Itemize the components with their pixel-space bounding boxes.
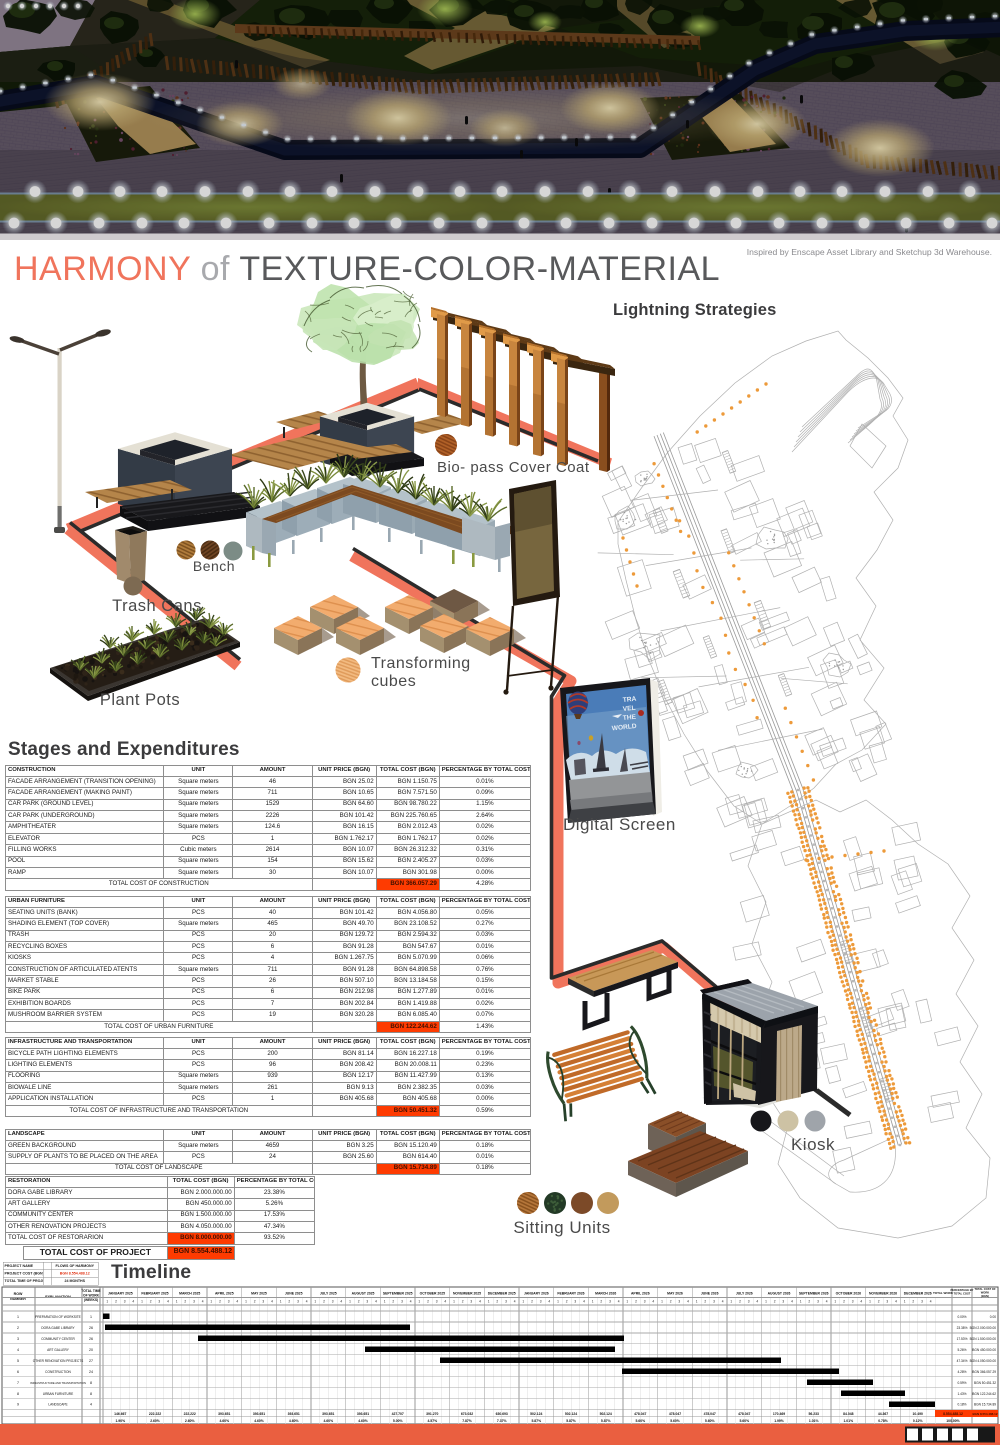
svg-text:8: 8 (90, 1392, 92, 1396)
svg-text:478.047: 478.047 (634, 1412, 646, 1416)
svg-text:1: 1 (592, 1300, 594, 1304)
svg-text:1: 1 (314, 1300, 316, 1304)
svg-text:3: 3 (886, 1300, 888, 1304)
svg-text:BGN 15.734.89: BGN 15.734.89 (974, 1403, 996, 1407)
svg-text:2: 2 (566, 1300, 568, 1304)
svg-text:LANDSCAPE: LANDSCAPE (48, 1403, 67, 1407)
svg-text:1: 1 (176, 1300, 178, 1304)
svg-text:4: 4 (306, 1300, 308, 1304)
svg-text:1: 1 (730, 1300, 732, 1304)
svg-text:502.124: 502.124 (530, 1412, 542, 1416)
svg-text:Kiosk: Kiosk (791, 1135, 835, 1154)
svg-text:27: 27 (89, 1359, 93, 1363)
svg-text:2: 2 (496, 1300, 498, 1304)
svg-text:1.99%: 1.99% (774, 1419, 784, 1423)
svg-text:3: 3 (609, 1300, 611, 1304)
svg-text:4: 4 (271, 1300, 273, 1304)
svg-text:2: 2 (462, 1300, 464, 1304)
svg-text:1: 1 (696, 1300, 698, 1304)
svg-text:NOVEMBER 2025: NOVEMBER 2025 (453, 1292, 481, 1296)
svg-text:4: 4 (90, 1403, 92, 1407)
svg-text:PREPARATION OF WORKSITE: PREPARATION OF WORKSITE (35, 1315, 81, 1319)
svg-text:5.00%: 5.00% (393, 1419, 403, 1423)
svg-text:2: 2 (635, 1300, 637, 1304)
svg-text:2: 2 (774, 1300, 776, 1304)
svg-text:4.28%: 4.28% (957, 1370, 966, 1374)
svg-text:1: 1 (557, 1300, 559, 1304)
svg-text:1: 1 (834, 1300, 836, 1304)
svg-text:TOTAL COST: TOTAL COST (954, 1292, 971, 1296)
svg-text:3: 3 (17, 1337, 19, 1341)
svg-text:4: 4 (236, 1300, 238, 1304)
svg-text:1: 1 (661, 1300, 663, 1304)
svg-text:6: 6 (17, 1370, 19, 1374)
svg-text:3: 3 (158, 1300, 160, 1304)
svg-text:2: 2 (219, 1300, 221, 1304)
svg-text:393.651: 393.651 (218, 1412, 230, 1416)
svg-text:3: 3 (332, 1300, 334, 1304)
svg-text:4: 4 (791, 1300, 793, 1304)
svg-text:DORA GABE LIBRARY: DORA GABE LIBRARY (41, 1326, 75, 1330)
svg-text:MAY 2025: MAY 2025 (251, 1292, 267, 1296)
svg-text:4: 4 (514, 1300, 516, 1304)
svg-text:4: 4 (756, 1300, 758, 1304)
svg-text:100.00%: 100.00% (946, 1419, 959, 1423)
svg-text:AUGUST 2026: AUGUST 2026 (768, 1292, 791, 1296)
svg-text:2: 2 (184, 1300, 186, 1304)
svg-text:2: 2 (704, 1300, 706, 1304)
svg-text:BGN 366.057.29: BGN 366.057.29 (972, 1370, 996, 1374)
svg-text:2: 2 (392, 1300, 394, 1304)
svg-text:478.047: 478.047 (669, 1412, 681, 1416)
svg-text:0.00: 0.00 (990, 1315, 996, 1319)
svg-text:4: 4 (479, 1300, 481, 1304)
svg-text:Bench: Bench (193, 558, 235, 574)
svg-text:TOTAL COST OF: TOTAL COST OF (974, 1287, 996, 1291)
svg-text:1: 1 (210, 1300, 212, 1304)
svg-text:1: 1 (626, 1300, 628, 1304)
svg-text:8: 8 (90, 1381, 92, 1385)
svg-text:JANUARY 2025: JANUARY 2025 (108, 1292, 133, 1296)
svg-text:INFRASTRUCTURE AND TRANSPORTAT: INFRASTRUCTURE AND TRANSPORTATION (30, 1381, 86, 1385)
svg-text:56.233: 56.233 (809, 1412, 819, 1416)
svg-text:2: 2 (670, 1300, 672, 1304)
svg-text:8.554.488.12: 8.554.488.12 (943, 1412, 963, 1416)
svg-text:4: 4 (340, 1300, 342, 1304)
svg-text:APRIL 2025: APRIL 2025 (215, 1292, 234, 1296)
svg-text:BGN 4.050.000.00: BGN 4.050.000.00 (970, 1359, 997, 1363)
svg-text:4.60%: 4.60% (289, 1419, 299, 1423)
svg-text:JULY 2025: JULY 2025 (320, 1292, 337, 1296)
svg-text:3: 3 (921, 1300, 923, 1304)
svg-text:4.57%: 4.57% (427, 1419, 437, 1423)
svg-text:2: 2 (17, 1326, 19, 1330)
svg-text:TRA: TRA (622, 696, 636, 704)
svg-text:Sitting Units: Sitting Units (513, 1218, 610, 1237)
svg-text:4: 4 (860, 1300, 862, 1304)
svg-text:ROW: ROW (14, 1292, 23, 1296)
svg-text:1: 1 (869, 1300, 871, 1304)
svg-text:146.667: 146.667 (114, 1412, 126, 1416)
svg-text:5.60%: 5.60% (705, 1419, 715, 1423)
svg-text:8: 8 (17, 1392, 19, 1396)
svg-text:2: 2 (531, 1300, 533, 1304)
svg-text:673.032: 673.032 (461, 1412, 473, 1416)
svg-text:478.047: 478.047 (738, 1412, 750, 1416)
svg-text:3: 3 (574, 1300, 576, 1304)
svg-text:BGN 1.500.000.00: BGN 1.500.000.00 (970, 1337, 997, 1341)
svg-text:4: 4 (375, 1300, 377, 1304)
svg-text:3: 3 (644, 1300, 646, 1304)
svg-text:BGN 122.244.62: BGN 122.244.62 (972, 1392, 996, 1396)
svg-text:4: 4 (652, 1300, 654, 1304)
svg-text:4: 4 (202, 1300, 204, 1304)
svg-text:2.60%: 2.60% (185, 1419, 195, 1423)
svg-text:393.651: 393.651 (322, 1412, 334, 1416)
svg-text:2: 2 (150, 1300, 152, 1304)
svg-text:ART GALLERY: ART GALLERY (47, 1348, 70, 1352)
svg-text:Plant Pots: Plant Pots (100, 691, 180, 709)
svg-text:1.43%: 1.43% (957, 1392, 966, 1396)
svg-text:WORK: WORK (981, 1291, 990, 1295)
svg-text:MAY 2026: MAY 2026 (667, 1292, 683, 1296)
svg-text:3: 3 (193, 1300, 195, 1304)
svg-text:0.59%: 0.59% (957, 1381, 966, 1385)
svg-text:1: 1 (418, 1300, 420, 1304)
svg-text:3: 3 (852, 1300, 854, 1304)
svg-text:4: 4 (583, 1300, 585, 1304)
svg-text:BGN 8.554.488.12: BGN 8.554.488.12 (972, 1412, 997, 1416)
svg-text:COMMUNITY CENTER: COMMUNITY CENTER (41, 1337, 75, 1341)
svg-text:Transforming: Transforming (371, 655, 471, 672)
svg-text:1: 1 (904, 1300, 906, 1304)
svg-text:4: 4 (132, 1300, 134, 1304)
svg-text:4: 4 (722, 1300, 724, 1304)
svg-text:5.87%: 5.87% (531, 1419, 541, 1423)
svg-text:9: 9 (17, 1403, 19, 1407)
svg-text:3: 3 (678, 1300, 680, 1304)
svg-text:0.00%: 0.00% (957, 1315, 966, 1319)
svg-text:1: 1 (245, 1300, 247, 1304)
svg-text:JULY 2026: JULY 2026 (736, 1292, 753, 1296)
svg-text:5.87%: 5.87% (566, 1419, 576, 1423)
svg-text:3: 3 (436, 1300, 438, 1304)
svg-text:17.53%: 17.53% (957, 1337, 968, 1341)
svg-text:5.26%: 5.26% (957, 1348, 966, 1352)
svg-text:1: 1 (106, 1300, 108, 1304)
svg-text:BGN 2.000.000.00: BGN 2.000.000.00 (970, 1326, 997, 1330)
svg-text:(BGN): (BGN) (981, 1294, 989, 1298)
svg-text:SEPTEMBER 2025: SEPTEMBER 2025 (383, 1292, 413, 1296)
svg-text:4: 4 (930, 1300, 932, 1304)
svg-text:2: 2 (323, 1300, 325, 1304)
svg-text:1: 1 (90, 1315, 92, 1319)
svg-text:2: 2 (427, 1300, 429, 1304)
svg-text:APRIL 2026: APRIL 2026 (631, 1292, 650, 1296)
svg-text:4: 4 (167, 1300, 169, 1304)
svg-text:1: 1 (17, 1315, 19, 1319)
svg-text:3: 3 (817, 1300, 819, 1304)
svg-text:2: 2 (878, 1300, 880, 1304)
svg-text:3: 3 (782, 1300, 784, 1304)
svg-text:JUNE 2026: JUNE 2026 (701, 1292, 719, 1296)
svg-text:4: 4 (17, 1348, 19, 1352)
svg-text:TOTAL TIME: TOTAL TIME (81, 1289, 101, 1293)
svg-text:1: 1 (141, 1300, 143, 1304)
svg-text:7.37%: 7.37% (497, 1419, 507, 1423)
svg-text:5.60%: 5.60% (739, 1419, 749, 1423)
svg-text:PERCENTAGE BY: PERCENTAGE BY (951, 1288, 974, 1292)
svg-text:3: 3 (748, 1300, 750, 1304)
svg-text:3: 3 (713, 1300, 715, 1304)
svg-text:4: 4 (444, 1300, 446, 1304)
svg-text:2: 2 (808, 1300, 810, 1304)
svg-text:4.60%: 4.60% (323, 1419, 333, 1423)
svg-text:VEL: VEL (622, 705, 635, 713)
svg-text:502.124: 502.124 (565, 1412, 577, 1416)
svg-text:1: 1 (765, 1300, 767, 1304)
svg-text:CONSTRUCTION: CONSTRUCTION (45, 1370, 71, 1374)
svg-text:THE: THE (622, 714, 636, 722)
svg-text:3: 3 (366, 1300, 368, 1304)
svg-text:OCTOBER 2025: OCTOBER 2025 (420, 1292, 445, 1296)
svg-text:393.651: 393.651 (288, 1412, 300, 1416)
svg-text:3: 3 (262, 1300, 264, 1304)
svg-text:427.707: 427.707 (392, 1412, 404, 1416)
svg-text:2: 2 (288, 1300, 290, 1304)
svg-text:AUGUST 2025: AUGUST 2025 (352, 1292, 375, 1296)
svg-text:OTHER RENOVATION PROJECTS: OTHER RENOVATION PROJECTS (33, 1359, 84, 1363)
svg-text:EXPLANATION: EXPLANATION (45, 1295, 71, 1299)
svg-text:5.87%: 5.87% (601, 1419, 611, 1423)
svg-text:44.367: 44.367 (878, 1412, 888, 1416)
svg-text:7.87%: 7.87% (462, 1419, 472, 1423)
svg-text:0.78%: 0.78% (878, 1419, 888, 1423)
svg-text:2: 2 (358, 1300, 360, 1304)
svg-text:630.693: 630.693 (496, 1412, 508, 1416)
svg-text:BGN 50.451.32: BGN 50.451.32 (974, 1381, 996, 1385)
svg-text:2: 2 (600, 1300, 602, 1304)
svg-text:4.60%: 4.60% (219, 1419, 229, 1423)
svg-text:NOVEMBER 2026: NOVEMBER 2026 (869, 1292, 897, 1296)
svg-text:4: 4 (687, 1300, 689, 1304)
svg-text:Bio- pass Cover Coat: Bio- pass Cover Coat (437, 459, 590, 476)
svg-text:23.38%: 23.38% (957, 1326, 968, 1330)
svg-text:(WEEKS): (WEEKS) (84, 1298, 98, 1302)
svg-text:4: 4 (895, 1300, 897, 1304)
svg-text:OF WORK: OF WORK (83, 1294, 100, 1298)
svg-text:3: 3 (540, 1300, 542, 1304)
svg-text:1: 1 (522, 1300, 524, 1304)
svg-text:3: 3 (470, 1300, 472, 1304)
svg-text:2.60%: 2.60% (150, 1419, 160, 1423)
svg-text:3: 3 (228, 1300, 230, 1304)
svg-text:4.60%: 4.60% (254, 1419, 264, 1423)
svg-text:4: 4 (618, 1300, 620, 1304)
svg-text:3: 3 (505, 1300, 507, 1304)
svg-text:BGN 450.000.00: BGN 450.000.00 (972, 1348, 996, 1352)
svg-text:7: 7 (17, 1381, 19, 1385)
svg-text:FEBRUARY 2025: FEBRUARY 2025 (141, 1292, 168, 1296)
svg-text:FEBRUARY 2026: FEBRUARY 2026 (557, 1292, 584, 1296)
svg-text:170.469: 170.469 (773, 1412, 785, 1416)
svg-text:10.490: 10.490 (913, 1412, 923, 1416)
svg-text:2: 2 (739, 1300, 741, 1304)
svg-text:3: 3 (401, 1300, 403, 1304)
svg-text:JUNE 2025: JUNE 2025 (285, 1292, 303, 1296)
svg-text:478.047: 478.047 (704, 1412, 716, 1416)
svg-text:24: 24 (89, 1370, 93, 1374)
svg-text:391.270: 391.270 (426, 1412, 438, 1416)
svg-text:4: 4 (826, 1300, 828, 1304)
svg-text:2: 2 (843, 1300, 845, 1304)
svg-text:0.18%: 0.18% (957, 1403, 966, 1407)
svg-text:222.222: 222.222 (184, 1412, 196, 1416)
svg-text:1.01%: 1.01% (809, 1419, 819, 1423)
svg-text:1: 1 (280, 1300, 282, 1304)
svg-text:1: 1 (488, 1300, 490, 1304)
svg-text:DECEMBER 2025: DECEMBER 2025 (488, 1292, 516, 1296)
svg-text:MARCH 2025: MARCH 2025 (179, 1292, 200, 1296)
svg-text:JANUARY 2026: JANUARY 2026 (524, 1292, 549, 1296)
svg-text:2: 2 (254, 1300, 256, 1304)
svg-text:3: 3 (297, 1300, 299, 1304)
svg-text:DECEMBER 2026: DECEMBER 2026 (904, 1292, 932, 1296)
svg-text:1.01%: 1.01% (843, 1419, 853, 1423)
svg-text:4: 4 (548, 1300, 550, 1304)
svg-text:2: 2 (912, 1300, 914, 1304)
svg-text:1.90%: 1.90% (115, 1419, 125, 1423)
svg-text:URBAN FURNITURE: URBAN FURNITURE (43, 1392, 73, 1396)
svg-text:3: 3 (124, 1300, 126, 1304)
svg-text:1: 1 (384, 1300, 386, 1304)
svg-text:1: 1 (800, 1300, 802, 1304)
svg-text:393.651: 393.651 (357, 1412, 369, 1416)
svg-text:5.60%: 5.60% (670, 1419, 680, 1423)
svg-text:4.60%: 4.60% (358, 1419, 368, 1423)
svg-text:cubes: cubes (371, 673, 416, 690)
svg-text:2: 2 (115, 1300, 117, 1304)
svg-text:0.12%: 0.12% (913, 1419, 923, 1423)
svg-text:MARCH 2026: MARCH 2026 (595, 1292, 616, 1296)
svg-text:5: 5 (17, 1359, 19, 1363)
svg-text:222.222: 222.222 (149, 1412, 161, 1416)
svg-text:26: 26 (89, 1337, 93, 1341)
svg-text:20: 20 (89, 1348, 93, 1352)
svg-text:Digital Screen: Digital Screen (563, 815, 676, 834)
svg-text:47.34%: 47.34% (957, 1359, 968, 1363)
svg-text:5.60%: 5.60% (635, 1419, 645, 1423)
svg-text:4: 4 (410, 1300, 412, 1304)
svg-text:84.048: 84.048 (843, 1412, 853, 1416)
svg-text:1: 1 (453, 1300, 455, 1304)
svg-text:502.124: 502.124 (600, 1412, 612, 1416)
svg-text:1: 1 (349, 1300, 351, 1304)
svg-text:OCTOBER 2026: OCTOBER 2026 (836, 1292, 861, 1296)
svg-text:393.651: 393.651 (253, 1412, 265, 1416)
svg-text:26: 26 (89, 1326, 93, 1330)
svg-text:SEPTEMBER 2026: SEPTEMBER 2026 (799, 1292, 829, 1296)
